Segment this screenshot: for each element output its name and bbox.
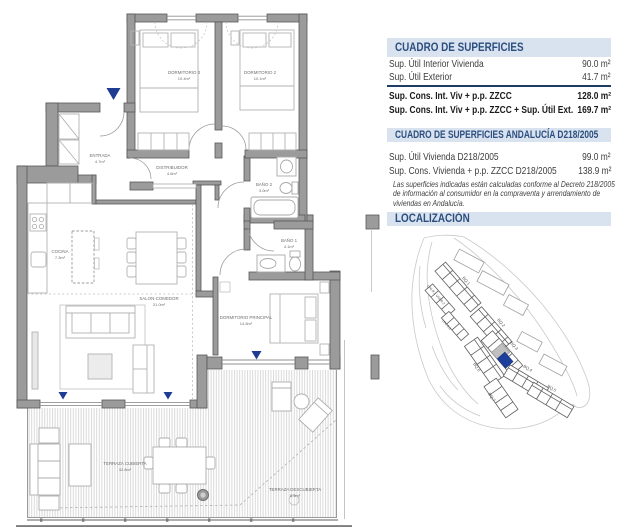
svg-text:10.1m²: 10.1m²: [254, 76, 267, 81]
svg-text:4.7m²: 4.7m²: [95, 159, 106, 164]
svg-text:7.3m²: 7.3m²: [55, 255, 66, 260]
svg-text:4.6m²: 4.6m²: [167, 171, 178, 176]
svg-text:DORMITORIO 2: DORMITORIO 2: [244, 70, 277, 75]
svg-text:31.0m²: 31.0m²: [153, 302, 166, 307]
svg-text:DORMITORIO PRINCIPAL: DORMITORIO PRINCIPAL: [220, 315, 273, 320]
svg-text:TERRAZA DESCUBIERTA: TERRAZA DESCUBIERTA: [269, 487, 321, 492]
svg-text:BAÑO 2: BAÑO 2: [256, 182, 273, 187]
svg-text:TERRAZA CUBIERTA: TERRAZA CUBIERTA: [103, 461, 146, 466]
svg-text:14.8m²: 14.8m²: [240, 321, 253, 326]
svg-text:SALON-COMEDOR: SALON-COMEDOR: [139, 296, 178, 301]
svg-text:ENTRADA: ENTRADA: [90, 153, 111, 158]
svg-text:DORMITORIO 3: DORMITORIO 3: [168, 70, 201, 75]
svg-text:8.5m²: 8.5m²: [290, 493, 301, 498]
svg-text:BQ.4: BQ.4: [522, 364, 533, 374]
svg-text:DISTRIBUIDOR: DISTRIBUIDOR: [156, 165, 187, 170]
svg-text:3.0m²: 3.0m²: [259, 188, 270, 193]
svg-text:32.8m²: 32.8m²: [119, 467, 132, 472]
svg-text:COCINA: COCINA: [51, 249, 68, 254]
svg-text:10.4m²: 10.4m²: [178, 76, 191, 81]
svg-text:4.1m²: 4.1m²: [284, 244, 295, 249]
svg-text:BAÑO 1: BAÑO 1: [281, 238, 298, 243]
